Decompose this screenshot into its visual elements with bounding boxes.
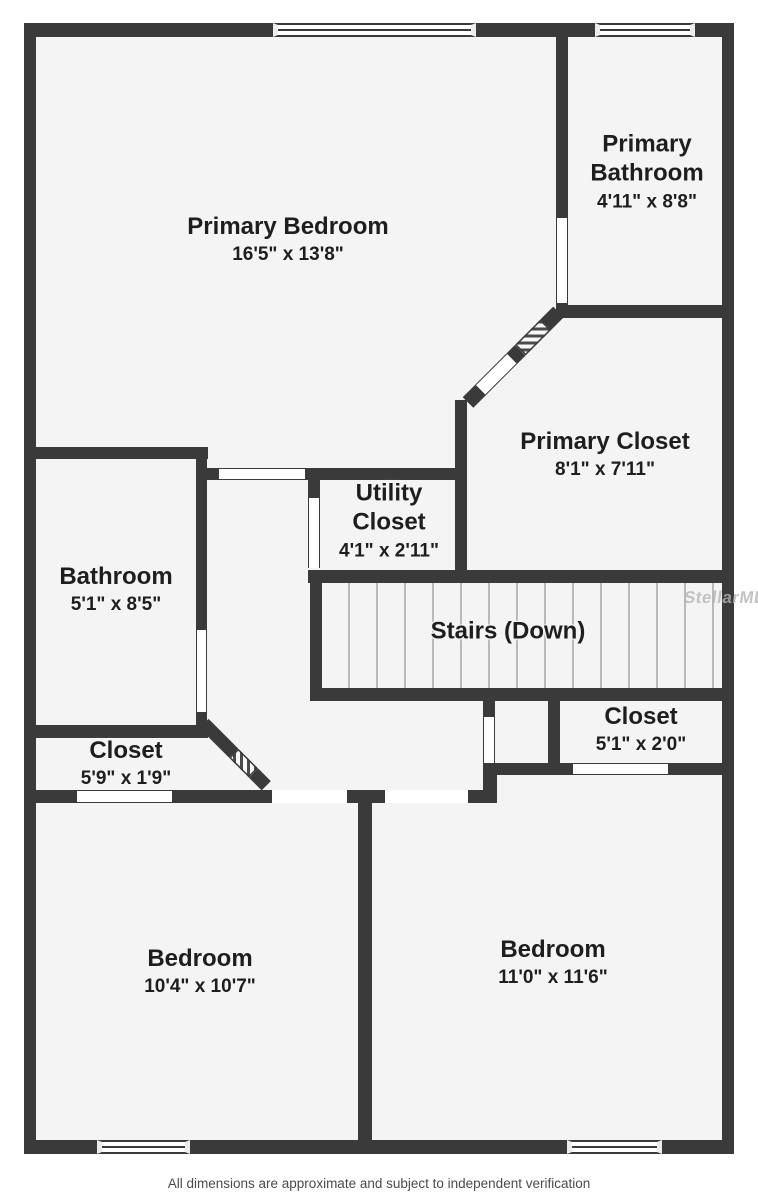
room-name: Primary Bedroom	[158, 212, 418, 241]
room-name: Primary Bathroom	[572, 129, 722, 188]
door-opening-bedroom-left	[272, 790, 347, 803]
room-label-closet-right: Closet 5'1" x 2'0"	[561, 702, 721, 758]
room-label-closet-left: Closet 5'9" x 1'9"	[46, 736, 206, 792]
watermark: StellarMLS	[683, 588, 758, 608]
room-name: Primary Closet	[485, 427, 725, 456]
wall-bedroom-divider	[358, 790, 372, 1140]
floor-plan: Primary Bedroom 16'5" x 13'8" Primary Ba…	[0, 0, 758, 1200]
room-name: Utility Closet	[329, 478, 449, 537]
room-dims: 4'11" x 8'8"	[572, 190, 722, 215]
wall-utility-closet-left-stub	[308, 480, 320, 498]
wall-stairs-left	[310, 570, 322, 701]
room-label-stairs: Stairs (Down)	[398, 616, 618, 645]
wall-primary-closet-left	[455, 400, 467, 583]
room-dims: 11'0" x 11'6"	[443, 966, 663, 991]
room-dims: 5'1" x 8'5"	[31, 593, 201, 618]
room-dims: 16'5" x 13'8"	[158, 243, 418, 268]
wall-stairs-top	[308, 570, 734, 583]
room-label-primary-closet: Primary Closet 8'1" x 7'11"	[485, 427, 725, 483]
room-label-bedroom-left: Bedroom 10'4" x 10'7"	[90, 944, 310, 1000]
door-opening-primary-bedroom	[219, 468, 305, 480]
room-name: Closet	[46, 736, 206, 765]
room-name: Closet	[561, 702, 721, 731]
door-opening-primary-bathroom	[556, 218, 568, 303]
room-label-utility-closet: Utility Closet 4'1" x 2'11"	[329, 478, 449, 563]
room-label-primary-bedroom: Primary Bedroom 16'5" x 13'8"	[158, 212, 418, 268]
room-dims: 8'1" x 7'11"	[485, 458, 725, 483]
door-opening-vestibule	[483, 717, 495, 763]
room-name: Bathroom	[31, 562, 201, 591]
room-dims: 4'1" x 2'11"	[329, 539, 449, 564]
door-opening-closet-right	[573, 763, 668, 775]
wall-primary-bathroom-bottom	[556, 305, 734, 318]
window-bedroom-left	[97, 1140, 190, 1154]
room-name: Bedroom	[443, 935, 663, 964]
room-dims: 10'4" x 10'7"	[90, 975, 310, 1000]
room-label-bedroom-right: Bedroom 11'0" x 11'6"	[443, 935, 663, 991]
footer-disclaimer: All dimensions are approximate and subje…	[0, 1176, 758, 1191]
door-opening-bathroom	[196, 630, 207, 712]
door-opening-bedroom-right	[385, 790, 468, 803]
window-bedroom-right	[567, 1140, 662, 1154]
room-label-bathroom: Bathroom 5'1" x 8'5"	[31, 562, 201, 618]
window-primary-bathroom	[595, 23, 695, 37]
wall-vestibule-left-stub	[483, 701, 495, 717]
door-opening-utility-closet	[308, 498, 320, 568]
room-label-primary-bathroom: Primary Bathroom 4'11" x 8'8"	[572, 129, 722, 214]
room-dims: 5'9" x 1'9"	[46, 767, 206, 792]
wall-bathroom-top	[24, 447, 208, 459]
room-name: Stairs (Down)	[398, 616, 618, 645]
wall-stairs-bottom	[310, 688, 734, 701]
room-name: Bedroom	[90, 944, 310, 973]
window-primary-bedroom	[273, 23, 476, 37]
wall-vestibule-closet-divider	[548, 701, 560, 763]
room-dims: 5'1" x 2'0"	[561, 733, 721, 758]
wall-primary-bedroom-bathroom	[556, 23, 568, 218]
